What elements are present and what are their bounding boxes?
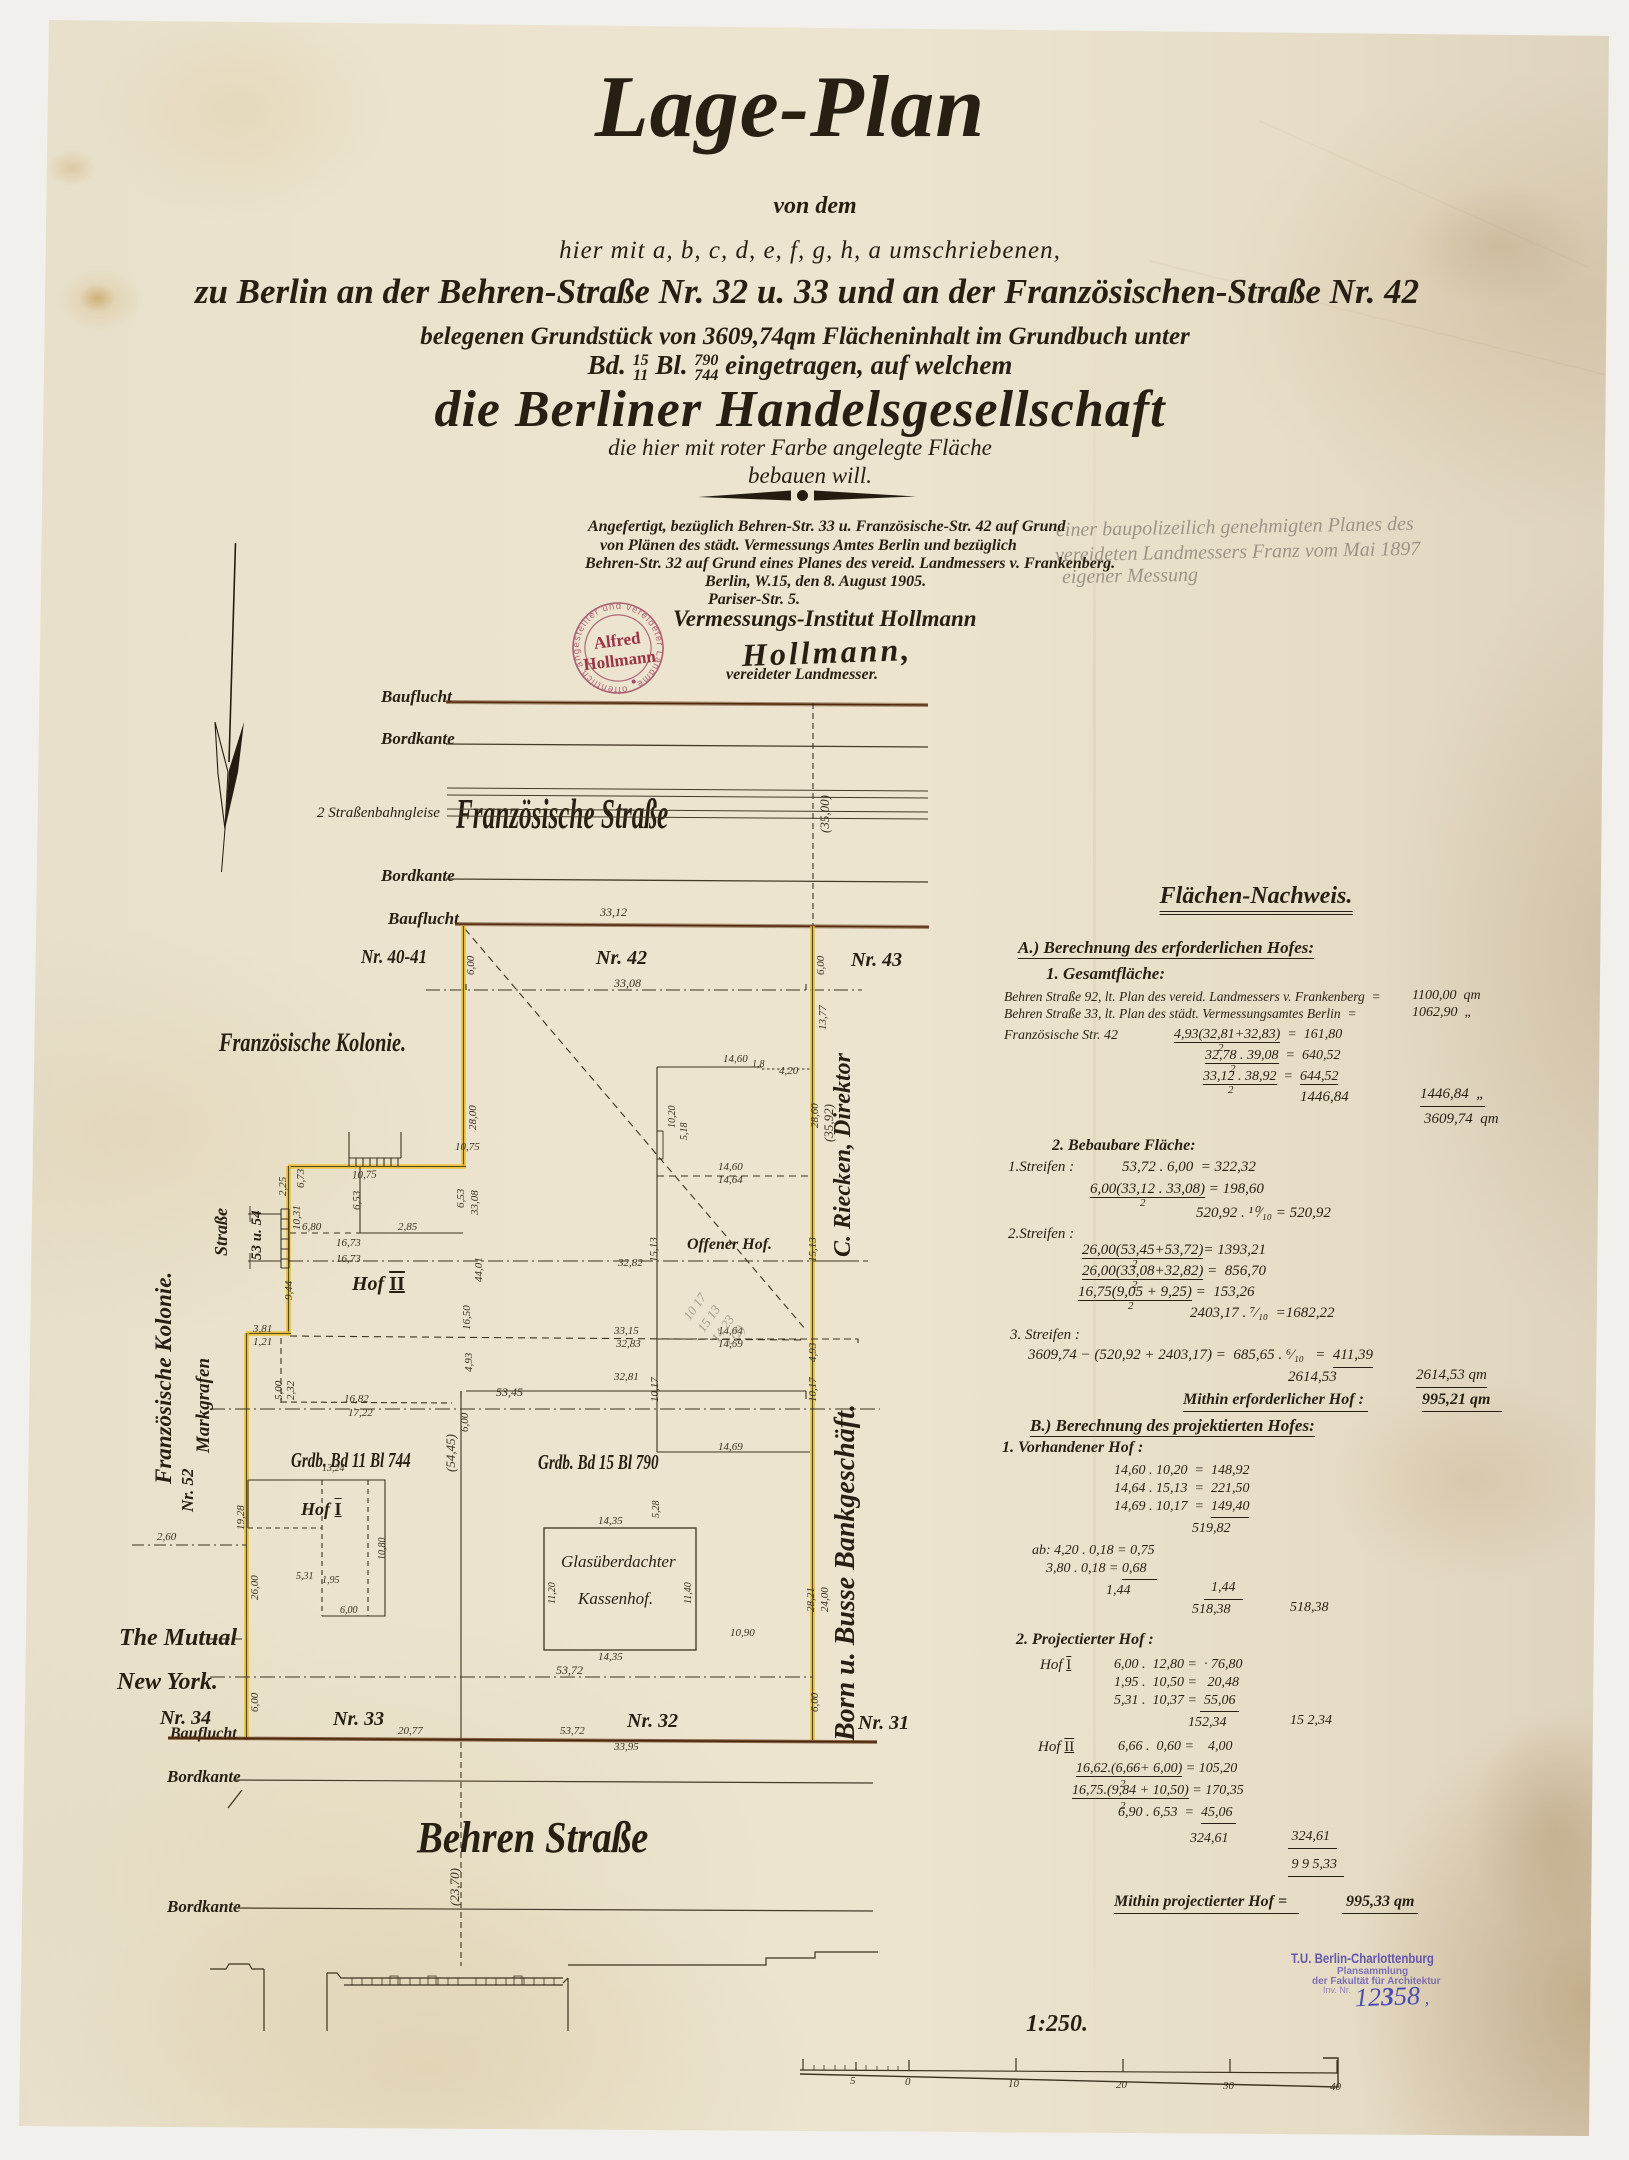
svg-text:0: 0 bbox=[905, 2076, 911, 2088]
svg-text:30: 30 bbox=[1222, 2080, 1235, 2092]
svg-text:10: 10 bbox=[1008, 2078, 1020, 2090]
svg-text:5: 5 bbox=[850, 2075, 856, 2087]
svg-text:20: 20 bbox=[1116, 2079, 1128, 2091]
svg-text:40: 40 bbox=[1330, 2081, 1342, 2093]
